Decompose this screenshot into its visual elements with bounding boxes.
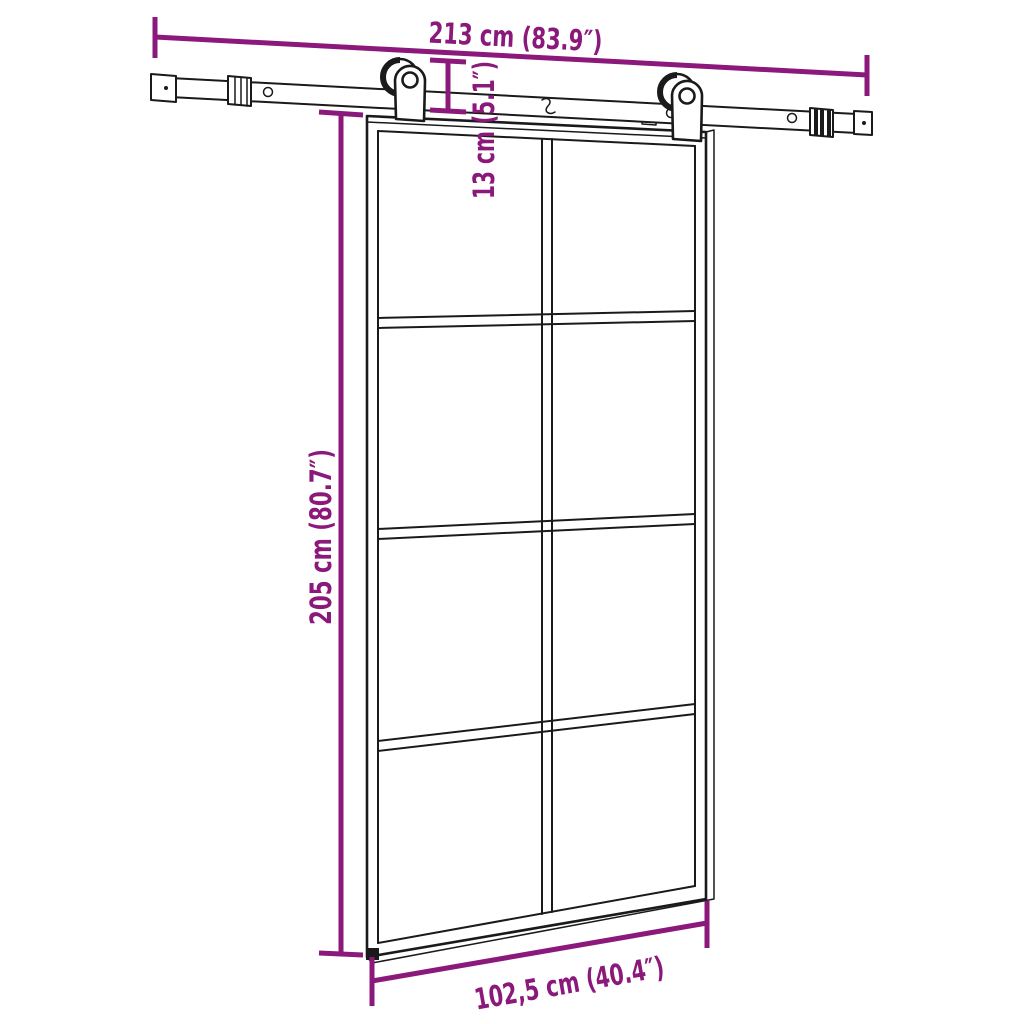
left-roller-hanger [382, 59, 425, 121]
rail-left-coupling [228, 76, 251, 106]
rail-right-coupling [810, 108, 833, 137]
hanger-drop-label: 13 cm (5.1″) [467, 61, 501, 199]
sliding-door-dimension-diagram: 213 cm (83.9″) 13 cm (5.1″) 205 cm (80.7… [0, 0, 1024, 1024]
left-hanger-bolt [403, 73, 418, 88]
rail-left-end-cap [151, 74, 176, 102]
right-cap-pin [862, 121, 866, 125]
door-height-tick-bottom [319, 953, 363, 955]
rail-hole [788, 114, 797, 123]
left-cap-pin [164, 86, 168, 90]
door-height-label: 205 cm (80.7″) [304, 449, 338, 625]
rail-hole [264, 88, 273, 97]
dimension-door-height: 205 cm (80.7″) [304, 112, 363, 955]
diagram-canvas: 213 cm (83.9″) 13 cm (5.1″) 205 cm (80.7… [0, 0, 1024, 1024]
hanger-drop-tick-bottom [430, 110, 466, 112]
door-height-tick-top [319, 112, 363, 115]
right-hanger-bolt [680, 89, 695, 104]
door-panel [366, 116, 714, 963]
hanger-drop-tick-top [430, 60, 466, 62]
